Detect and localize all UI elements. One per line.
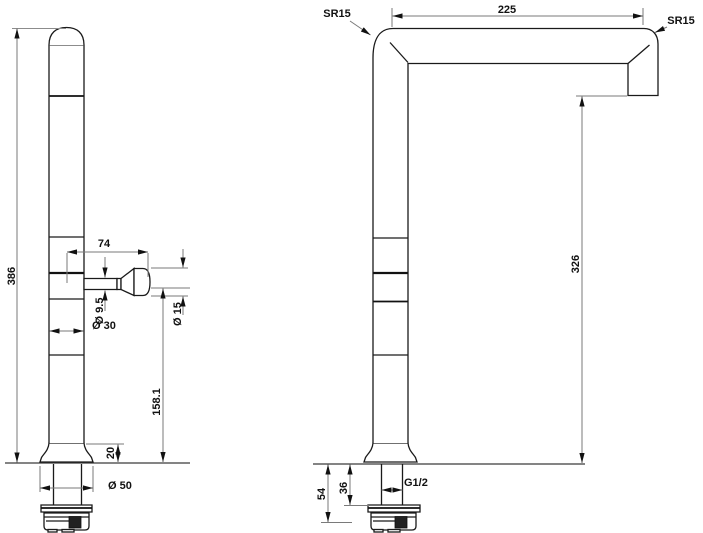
corner-radius-label: SR15 bbox=[323, 8, 351, 20]
faucet-body-outline bbox=[49, 28, 84, 444]
dim-shank-total-label: 54 bbox=[316, 487, 328, 500]
technical-drawing-page: 386 74 Ø 9.5 Ø 30 Ø 15 bbox=[0, 0, 703, 533]
dim-knob-diameter: Ø 15 bbox=[151, 249, 188, 326]
tip-radius-label: SR15 bbox=[667, 15, 695, 27]
label-tip-radius: SR15 bbox=[655, 15, 695, 33]
dim-stem-diameter: Ø 9.5 bbox=[94, 257, 106, 324]
base-bell bbox=[40, 443, 93, 462]
nut-foot bbox=[374, 530, 383, 533]
nut-foot bbox=[388, 530, 400, 533]
nut-detail-block bbox=[69, 517, 81, 529]
dim-spout-reach: 225 bbox=[392, 4, 643, 27]
nut-foot bbox=[62, 530, 74, 533]
dim-outlet-height: 326 bbox=[570, 96, 627, 463]
dim-thread-size: G1/2 bbox=[382, 477, 428, 490]
handle-cone bbox=[121, 269, 134, 296]
right-view: SR15 225 SR15 326 54 bbox=[313, 4, 695, 532]
left-view: 386 74 Ø 9.5 Ø 30 Ø 15 bbox=[5, 28, 190, 533]
dim-body-diameter-label: Ø 30 bbox=[92, 320, 116, 332]
dim-handle-height: 158.1 bbox=[151, 288, 190, 462]
dim-knob-diameter-label: Ø 15 bbox=[172, 302, 184, 326]
dim-base-height-label: 20 bbox=[105, 447, 117, 459]
spout-outline bbox=[373, 29, 658, 444]
dim-shank-to-washer: 36 bbox=[338, 465, 369, 506]
nut-detail-block bbox=[395, 517, 407, 529]
handle-stem bbox=[84, 279, 117, 290]
dim-base-diameter-label: Ø 50 bbox=[108, 480, 132, 492]
faucet-dimension-drawing: 386 74 Ø 9.5 Ø 30 Ø 15 bbox=[0, 0, 703, 533]
dim-spout-reach-label: 225 bbox=[498, 4, 516, 16]
dim-thread-size-label: G1/2 bbox=[404, 477, 428, 489]
dim-outlet-height-label: 326 bbox=[570, 255, 582, 273]
nut-foot bbox=[48, 530, 57, 533]
dim-shank-to-washer-label: 36 bbox=[338, 482, 350, 494]
dim-handle-reach-label: 74 bbox=[98, 238, 111, 250]
label-corner-radius: SR15 bbox=[323, 8, 370, 35]
dim-overall-height-label: 386 bbox=[6, 267, 18, 285]
dim-handle-height-label: 158.1 bbox=[151, 388, 163, 416]
base-bell bbox=[364, 443, 417, 462]
leader-line bbox=[350, 21, 371, 35]
leader-line bbox=[655, 27, 667, 33]
